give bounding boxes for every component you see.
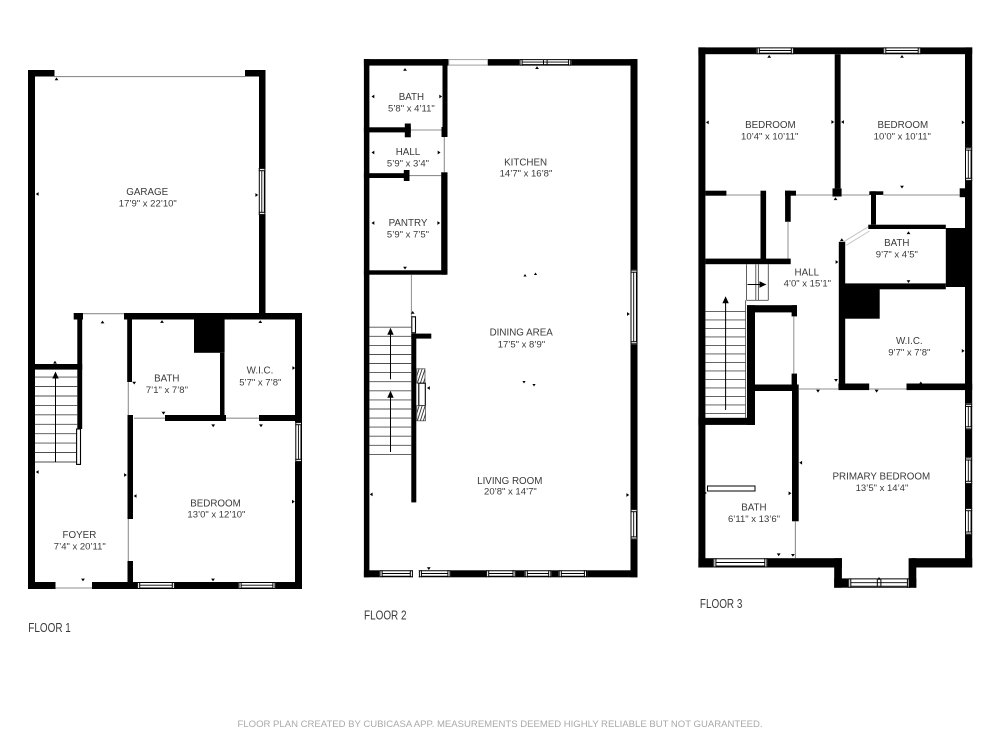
svg-text:PANTRY: PANTRY (389, 218, 428, 229)
svg-text:BATH: BATH (154, 374, 179, 385)
svg-text:DINING AREA: DINING AREA (490, 327, 554, 338)
svg-text:4’0" x 15’1": 4’0" x 15’1" (784, 279, 831, 290)
svg-text:5’9" x 3’4": 5’9" x 3’4" (387, 159, 429, 170)
svg-text:7’1" x 7’8": 7’1" x 7’8" (146, 385, 188, 396)
svg-text:HALL: HALL (396, 147, 421, 158)
svg-text:FLOOR 3: FLOOR 3 (700, 596, 743, 611)
svg-text:13’0" x 12’10": 13’0" x 12’10" (187, 510, 245, 521)
svg-text:5’8" x 4’11": 5’8" x 4’11" (388, 103, 435, 114)
svg-text:20’8" x 14’7": 20’8" x 14’7" (484, 486, 537, 497)
svg-text:10’4" x 10’11": 10’4" x 10’11" (741, 131, 798, 142)
svg-text:FLOOR 1: FLOOR 1 (28, 620, 71, 635)
svg-text:BEDROOM: BEDROOM (877, 120, 928, 131)
svg-text:W.I.C.: W.I.C. (896, 336, 923, 347)
svg-text:9’7" x 7’8": 9’7" x 7’8" (888, 348, 930, 359)
svg-text:BATH: BATH (741, 503, 766, 514)
svg-text:KITCHEN: KITCHEN (504, 158, 547, 169)
svg-text:7’4" x 20’11": 7’4" x 20’11" (54, 541, 106, 552)
svg-text:HALL: HALL (795, 267, 820, 278)
svg-text:FLOOR PLAN CREATED BY CUBICASA: FLOOR PLAN CREATED BY CUBICASA APP. MEAS… (238, 719, 763, 729)
svg-text:BATH: BATH (399, 92, 424, 103)
svg-text:14’7" x 16’8": 14’7" x 16’8" (500, 169, 553, 180)
svg-text:10’0" x 10’11": 10’0" x 10’11" (874, 131, 931, 142)
svg-text:PRIMARY BEDROOM: PRIMARY BEDROOM (832, 471, 930, 482)
svg-text:17’9" x 22’10": 17’9" x 22’10" (119, 198, 177, 209)
svg-text:BATH: BATH (884, 238, 909, 249)
svg-text:FLOOR 2: FLOOR 2 (364, 607, 407, 622)
svg-text:13’5" x 14’4": 13’5" x 14’4" (856, 483, 909, 494)
svg-text:5’7" x 7’8": 5’7" x 7’8" (239, 378, 281, 389)
svg-text:FOYER: FOYER (63, 530, 97, 541)
svg-text:BEDROOM: BEDROOM (190, 498, 241, 509)
svg-text:GARAGE: GARAGE (126, 187, 168, 198)
svg-text:W.I.C.: W.I.C. (247, 365, 274, 376)
svg-text:9’7" x 4’5": 9’7" x 4’5" (876, 250, 918, 261)
svg-text:5’9" x 7’5": 5’9" x 7’5" (387, 230, 429, 241)
svg-text:17’5" x 8’9": 17’5" x 8’9" (498, 339, 545, 350)
svg-text:6’11" x 13’6": 6’11" x 13’6" (728, 514, 780, 525)
svg-text:BEDROOM: BEDROOM (745, 120, 796, 131)
svg-text:LIVING ROOM: LIVING ROOM (477, 476, 542, 487)
